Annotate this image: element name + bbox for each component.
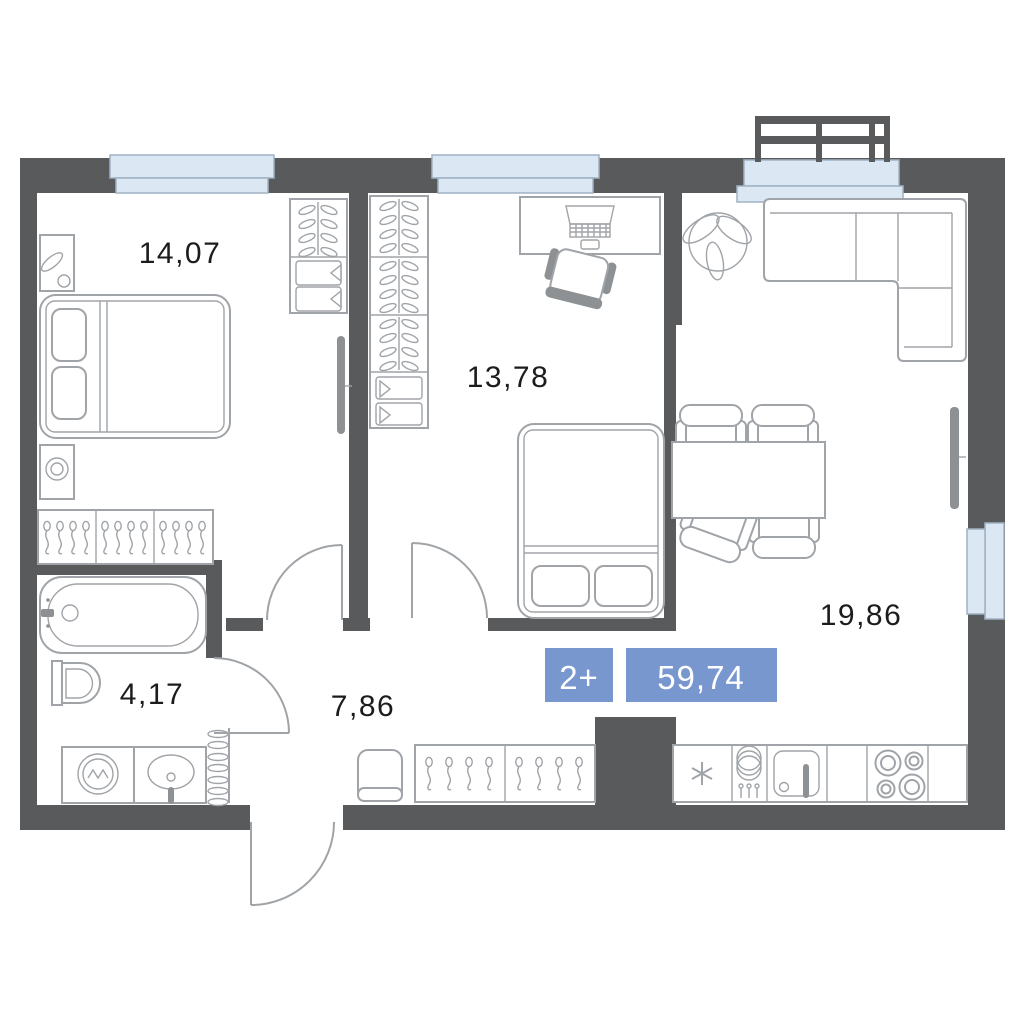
entrance-door-arc-icon <box>251 822 334 905</box>
hallway: 7,86 <box>331 690 595 802</box>
balcony-railing-icon <box>755 116 890 162</box>
plant-icon <box>679 210 756 282</box>
badge-area-label: 59,74 <box>657 659 745 696</box>
room-area-label: 14,07 <box>139 237 222 270</box>
dining-set <box>672 405 825 566</box>
room-area-label: 7,86 <box>331 690 395 723</box>
room-area-label: 13,78 <box>467 361 550 394</box>
wall-bed2-living-thick <box>664 193 682 325</box>
wall-left <box>20 158 37 830</box>
bathroom: 4,17 <box>40 577 229 806</box>
bathtub-icon <box>40 577 206 653</box>
double-bed-icon <box>40 295 230 438</box>
tv-icon <box>950 407 966 509</box>
living-kitchen: 19,86 <box>672 199 967 802</box>
nightstand-lamp-icon <box>40 445 74 499</box>
wall-hall-c <box>488 618 676 631</box>
toilet-icon <box>52 661 100 705</box>
wardrobe-hangers-icon <box>370 196 428 428</box>
badge-rooms-label: 2+ <box>559 659 599 696</box>
wall-right <box>968 158 1005 830</box>
wall-hall-a <box>226 618 263 631</box>
pouf-icon <box>358 750 402 801</box>
wall-bottom-right <box>343 805 1005 830</box>
single-bed-icon <box>518 424 664 618</box>
room-area-label: 4,17 <box>120 678 184 711</box>
door-arc-icon <box>267 545 342 620</box>
window-icon <box>432 155 599 193</box>
wall-bathroom-right <box>206 560 222 658</box>
floor-plan: 14,07 <box>0 0 1024 1024</box>
dining-table-icon <box>672 442 825 518</box>
coat-hooks-rack-icon <box>38 510 213 564</box>
sink-icon <box>134 747 206 804</box>
desk-laptop-icon <box>520 197 660 254</box>
coat-hooks-rack-icon <box>415 745 595 802</box>
wardrobe-hangers-icon <box>290 199 347 313</box>
wall-kitchen-stub <box>595 717 676 805</box>
washing-machine-icon <box>62 747 134 803</box>
bedroom-2: 13,78 <box>370 196 664 618</box>
wall-bottom-left <box>20 805 250 830</box>
kitchen-counter <box>673 745 967 802</box>
room-area-label: 19,86 <box>820 599 903 632</box>
window-icon <box>110 155 274 193</box>
wall-bed1-bed2 <box>349 193 368 623</box>
door-arc-icon <box>412 543 487 618</box>
towel-radiator-icon <box>208 728 229 806</box>
floor-plan-canvas: 14,07 <box>0 0 1024 1024</box>
office-chair-icon <box>539 245 617 311</box>
window-icon <box>967 523 1004 619</box>
wall-hall-foot <box>343 618 370 631</box>
window-icon <box>737 160 903 202</box>
bedroom-1: 14,07 <box>38 199 352 564</box>
door-arc-icon <box>214 658 289 733</box>
nightstand-plant-icon <box>39 235 74 291</box>
area-badge: 2+ 59,74 <box>545 648 777 702</box>
corner-sofa-icon <box>764 199 966 361</box>
